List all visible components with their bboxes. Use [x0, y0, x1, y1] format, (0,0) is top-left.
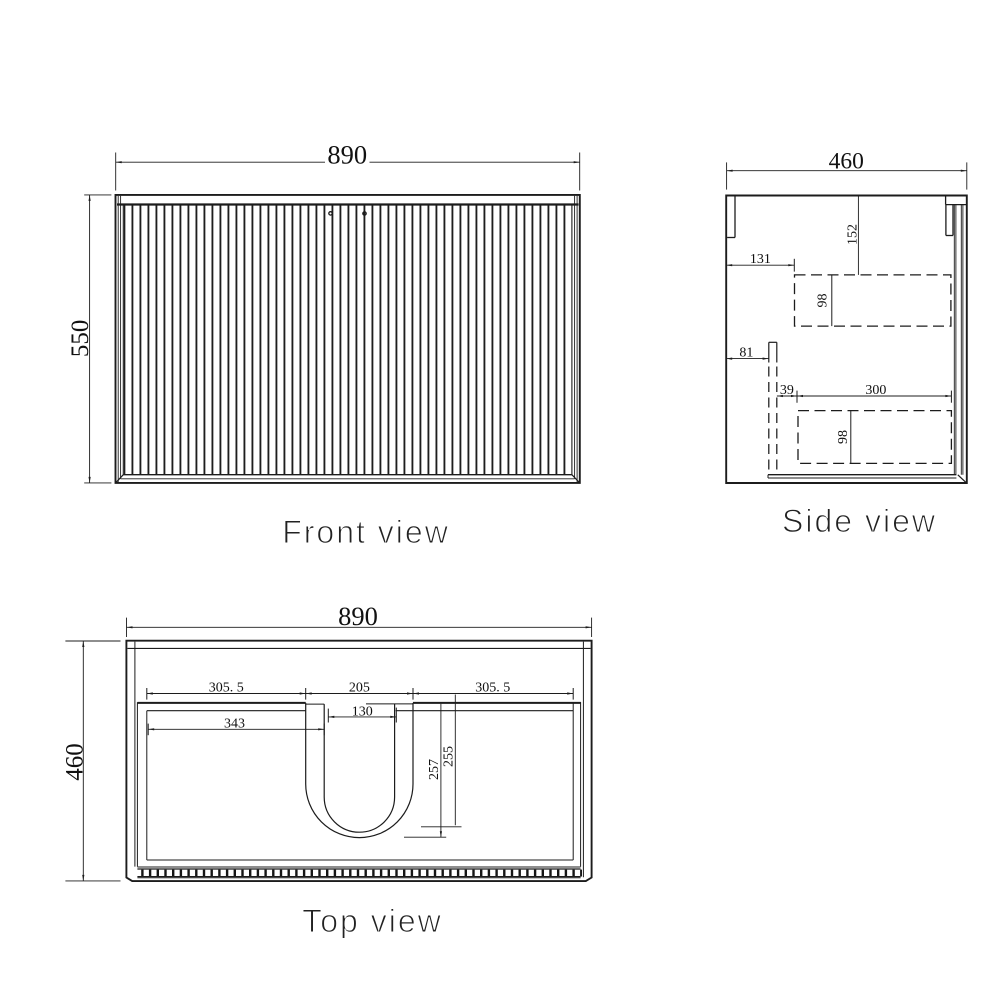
- svg-text:343: 343: [224, 717, 245, 732]
- svg-text:81: 81: [739, 346, 753, 361]
- svg-text:890: 890: [327, 139, 367, 169]
- svg-text:152: 152: [845, 224, 860, 245]
- svg-text:Front view: Front view: [282, 514, 450, 550]
- svg-text:460: 460: [829, 149, 864, 175]
- svg-text:130: 130: [352, 704, 373, 719]
- svg-text:98: 98: [816, 294, 831, 308]
- svg-text:98: 98: [836, 430, 851, 444]
- svg-text:Side view: Side view: [782, 503, 937, 539]
- svg-text:39: 39: [780, 383, 794, 398]
- svg-text:305. 5: 305. 5: [475, 681, 510, 696]
- svg-text:131: 131: [750, 252, 771, 267]
- svg-text:255: 255: [441, 746, 456, 767]
- svg-text:257: 257: [427, 759, 442, 780]
- svg-text:460: 460: [62, 743, 89, 781]
- svg-text:550: 550: [67, 320, 94, 358]
- svg-text:890: 890: [338, 601, 378, 631]
- svg-text:Top view: Top view: [302, 903, 443, 939]
- svg-text:300: 300: [865, 383, 886, 398]
- svg-text:205: 205: [349, 681, 370, 696]
- svg-text:305. 5: 305. 5: [209, 681, 244, 696]
